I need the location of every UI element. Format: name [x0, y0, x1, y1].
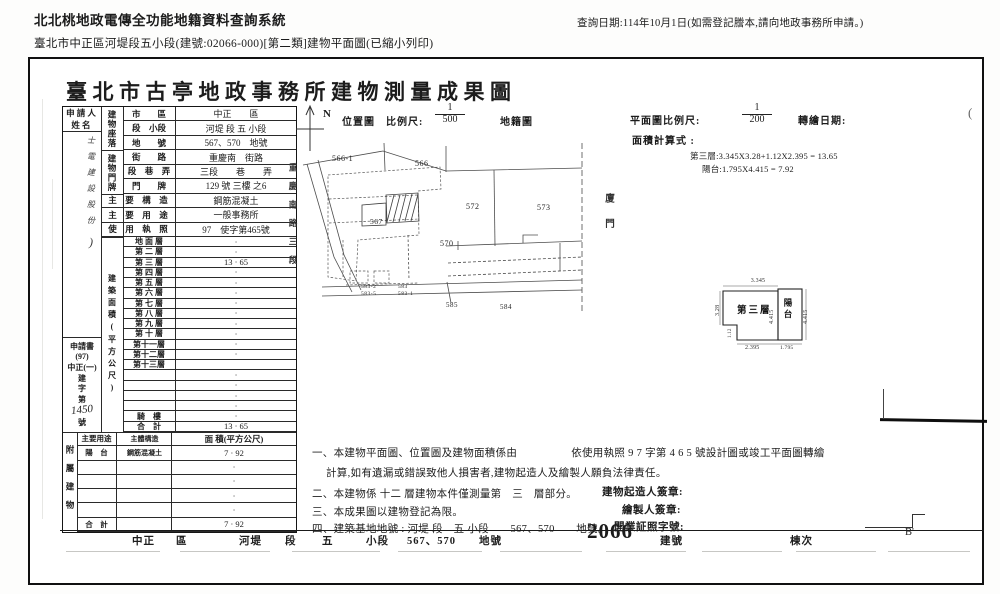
table-rule: [63, 131, 101, 132]
underline-mark: [292, 551, 380, 552]
scan-artifact-line: [865, 527, 912, 528]
handwritten-character: 股: [87, 199, 95, 210]
handwritten-mark: ): [89, 235, 94, 250]
attached-area: 7 · 92: [171, 518, 296, 531]
field-value: 567、570 地號: [175, 136, 296, 149]
field-label: 市 區: [123, 107, 175, 120]
attached-structure: [116, 461, 172, 474]
application-number-suffix: 號: [63, 417, 101, 428]
scan-artifact-mark: (: [968, 105, 972, 121]
bottom-strip-item: 河堤: [239, 533, 262, 548]
floor-label: 第十一層: [123, 340, 175, 349]
floor-row: 第 七 層·: [123, 299, 296, 309]
plan-scale-label: 平面圖比例尺:: [630, 112, 700, 127]
table-rule: [101, 237, 123, 238]
field-row: 門 牌129 號 三樓 之6: [123, 179, 296, 193]
parcel-number: 584: [500, 303, 512, 311]
attached-structure: [116, 489, 172, 502]
floor-row: 第 九 層·: [123, 319, 296, 329]
field-label: 使 用 執 照: [101, 223, 175, 236]
area-calc-label: 面積計算式 :: [632, 132, 695, 147]
attached-area: ·: [171, 475, 296, 488]
attached-use: 主要用途: [77, 432, 116, 445]
parcel-number: 585: [446, 301, 458, 309]
survey-sheet: 臺北市古亭地政事務所建物測量成果圖 申 請 人 姓 名 士電建設股份) 申請書(…: [28, 57, 984, 585]
floor-row: 第 五 層·: [123, 278, 296, 288]
field-value: 鋼筋混凝土: [175, 194, 296, 207]
cadastral-lines: [298, 143, 638, 319]
applicant-label: 申 請 人: [63, 107, 99, 119]
field-label: 地 號: [123, 136, 175, 149]
floor-row: 第 四 層·: [123, 268, 296, 278]
field-value: 中正 區: [175, 107, 296, 120]
scan-artifact-line: [912, 514, 913, 528]
attached-structure: [116, 475, 172, 488]
floor-label: 第 八 層: [123, 309, 175, 318]
parcel-number: 566-1: [332, 154, 353, 163]
application-stack-line: (97): [63, 352, 101, 361]
plan-scale: 1 200: [742, 103, 772, 125]
bottom-strip-item: 小段: [366, 533, 389, 548]
scan-artifact-line: [52, 179, 53, 269]
floor-plan-detail: 第三層 陽台 3.345 3.28 1.12 2.395 4.415 4.415…: [718, 283, 850, 361]
attached-row: ·: [77, 503, 296, 517]
floor-row: 合 計13 · 65: [123, 422, 296, 432]
location-map-scale: 1 500: [435, 103, 465, 125]
floor-area-value: ·: [175, 381, 296, 390]
scan-artifact-line: [42, 99, 43, 519]
scale-denominator: 500: [435, 114, 465, 125]
floor-row: 第十三層: [123, 360, 296, 370]
field-value: 河堤 段 五 小段: [175, 121, 296, 134]
dim-bottom: 2.395: [745, 345, 760, 351]
floor-label: 合 計: [123, 422, 175, 431]
dim-left: 3.28: [715, 305, 721, 316]
attached-area: ·: [171, 489, 296, 502]
floor-row: 第 六 層·: [123, 288, 296, 298]
floor-label: 地 面 層: [123, 237, 175, 246]
floor-area-value: ·: [175, 319, 296, 328]
floor-row: ·: [123, 391, 296, 401]
underline-mark: [702, 551, 782, 552]
area-calc-line: 陽台:1.795X4.415 = 7.92: [702, 163, 794, 175]
table-rule: [63, 337, 101, 338]
floor-area-value: ·: [175, 350, 296, 359]
field-label: 段 巷 弄: [123, 165, 175, 178]
scanned-document-page: 北北桃地政電傳全功能地籍資料查詢系統 查詢日期:114年10月1日(如需登記謄本…: [0, 0, 1000, 594]
floor-label: 第 十 層: [123, 329, 175, 338]
attached-group-label: 附屬建物: [63, 434, 77, 530]
attached-area: ·: [171, 461, 296, 474]
attached-use: 陽 台: [77, 446, 116, 459]
floor-row: ·: [123, 381, 296, 391]
building-number: 2066: [587, 519, 633, 544]
handwritten-character: 士: [87, 135, 95, 146]
floor-area-value: ·: [175, 309, 296, 318]
floor-area-value: ·: [175, 299, 296, 308]
parcel-number: 583-2: [361, 284, 376, 290]
application-stack-line: 字: [63, 383, 101, 394]
underline-mark: [500, 551, 582, 552]
field-value: 一般事務所: [175, 208, 296, 221]
floor-label: 第 九 層: [123, 319, 175, 328]
floor-area-value: [175, 360, 296, 369]
attached-structure: [116, 518, 172, 531]
underline-mark: [888, 551, 970, 552]
dim-top: 3.345: [740, 278, 776, 284]
floor-row: 地 面 層·: [123, 237, 296, 247]
field-value: 三段 巷 弄: [175, 165, 296, 178]
bottom-strip-item: 段: [285, 533, 297, 548]
system-title: 北北桃地政電傳全功能地籍資料查詢系統: [34, 9, 286, 29]
bottom-strip-item: 區: [176, 533, 188, 548]
field-value: 97 使字第465號: [175, 223, 296, 236]
floor-area-value: ·: [175, 411, 296, 420]
bottom-strip-item: 建號: [660, 533, 683, 548]
floor-area-value: ·: [175, 370, 296, 379]
applicant-label: 姓 名: [63, 119, 99, 131]
parcel-number: 583-1: [398, 291, 413, 297]
parcel-number: 583-5: [361, 291, 376, 297]
builder-signature-label: 建物起造人簽章:: [602, 484, 683, 499]
field-row: 市 區中正 區: [123, 107, 296, 121]
floor-row: ·: [123, 370, 296, 380]
address-group-label: 建物門牌: [102, 152, 122, 193]
underline-mark: [180, 551, 270, 552]
dim-balcony-right: 4.415: [803, 310, 809, 325]
street-label-right: 廈門: [601, 193, 615, 263]
floor-area-value: ·: [175, 268, 296, 277]
scan-artifact-line: [883, 389, 884, 419]
scale-denominator: 200: [742, 114, 772, 125]
application-stack-line: 建: [63, 373, 101, 384]
floor-label: 第 六 層: [123, 288, 175, 297]
floor-area-value: ·: [175, 329, 296, 338]
floor-row: 第 十 層·: [123, 329, 296, 339]
floor-area-value: ·: [175, 391, 296, 400]
document-subtitle: 臺北市中正區河堤段五小段(建號:02066-000)[第二類]建物平面圖(已縮小…: [34, 35, 433, 51]
dim-balcony-bottom: 1.795: [780, 345, 793, 351]
scale-numerator: 1: [448, 102, 453, 113]
field-value: 129 號 三樓 之6: [175, 179, 296, 192]
attached-use: 合 計: [77, 518, 116, 531]
building-data-table: 申 請 人 姓 名 士電建設股份) 申請書(97)中正(一)建字第1450號 建…: [62, 106, 297, 533]
floor-label: 騎 樓: [123, 411, 175, 420]
attached-use: [77, 475, 116, 488]
floor-label: 第十三層: [123, 360, 175, 369]
bottom-strip-item: 地號: [479, 533, 502, 548]
floor-label: 第 四 層: [123, 268, 175, 277]
location-group-label: 建物座落: [102, 108, 122, 149]
note-line-1b: 計算,如有遺漏或錯誤致他人損害者,建物起造人及繪製人願負法律責任。: [326, 465, 667, 480]
field-label: 主 要 構 造: [101, 194, 175, 207]
scan-artifact-line: [880, 418, 987, 422]
room-label: 第三層: [737, 302, 772, 316]
handwritten-character: 電: [87, 151, 95, 162]
floor-label: 第十二層: [123, 350, 175, 359]
floor-label: 第 七 層: [123, 299, 175, 308]
floor-row: 第 八 層·: [123, 309, 296, 319]
floor-label: 第 三 層: [123, 258, 175, 267]
floor-area-value: ·: [175, 247, 296, 256]
floor-label: [123, 381, 175, 390]
field-row: 段 巷 弄三段 巷 弄: [123, 165, 296, 179]
attached-use: [77, 489, 116, 502]
note-line-1: 一、本建物平面圖、位置圖及建物面積係由 依使用執照 9 7 字第 4 6 5 號…: [312, 445, 825, 460]
floor-area-value: ·: [175, 278, 296, 287]
scale-numerator: 1: [755, 102, 760, 113]
underline-mark: [606, 551, 686, 552]
handwritten-character: 建: [87, 167, 95, 178]
parcel-number: 573: [537, 203, 551, 212]
floor-row: 第十一層·: [123, 340, 296, 350]
floor-area-value: 13 · 65: [175, 422, 296, 431]
floor-label: [123, 401, 175, 410]
bottom-strip-item: 五: [322, 533, 334, 548]
note-line-2: 二、本建物係 十二 層建物本件僅測量第 三 層部分。: [312, 486, 577, 501]
field-row: 地 號567、570 地號: [123, 136, 296, 150]
attached-structure: 鋼筋混凝土: [116, 446, 172, 459]
floor-label: 第 二 層: [123, 247, 175, 256]
bottom-strip-item: 棟次: [790, 533, 813, 548]
attached-area: 7 · 92: [171, 446, 296, 459]
redraw-date-label: 轉繪日期:: [798, 112, 846, 127]
field-row: 段 小段河堤 段 五 小段: [123, 121, 296, 135]
table-rule: [101, 150, 123, 151]
note-line-3: 三、本成果圖以建物登記為限。: [312, 504, 463, 519]
street-label-left: 重慶南路三段: [287, 163, 299, 303]
floor-area-value: ·: [175, 288, 296, 297]
location-map-caption: 位置圖 比例尺:: [342, 113, 423, 128]
field-label: 主 要 用 途: [101, 208, 175, 221]
bottom-strip-item: 567、570: [407, 533, 456, 548]
area-calc-line: 第三層:3.345X3.28+1.12X2.395 = 13.65: [690, 150, 838, 162]
attached-structure: [116, 503, 172, 516]
balcony-label: 陽台: [782, 298, 794, 321]
application-stack-line: 中正(一): [63, 362, 101, 373]
attached-area: ·: [171, 503, 296, 516]
attached-use: [77, 503, 116, 516]
parcel-number: 570: [440, 239, 454, 248]
cadastre-map-caption: 地籍圖: [500, 113, 533, 128]
query-date: 查詢日期:114年10月1日(如需登記謄本,請向地政事務所申請。): [577, 15, 864, 30]
parcel-number: 572: [466, 202, 480, 211]
note-line-4: 四、建築基地地號 : 河堤 段 五 小段 567、570 地號。: [312, 521, 609, 536]
attached-row: ·: [77, 489, 296, 503]
field-row: 街 路重慶南 街路: [123, 150, 296, 164]
floor-area-group-label: 建築面積(平方公尺): [102, 239, 122, 430]
parcel-number: 583: [398, 284, 408, 290]
attached-header-row: 主要用途主體構造面 積(平方公尺): [77, 432, 296, 446]
floor-row: 騎 樓·: [123, 411, 296, 421]
bottom-strip-item: 中正: [132, 533, 155, 548]
field-value: 重慶南 街路: [175, 150, 296, 163]
bottom-separator-line: [60, 530, 984, 531]
floor-row: 第 三 層13 · 65: [123, 258, 296, 268]
underline-mark: [796, 551, 876, 552]
floor-row: ·: [123, 401, 296, 411]
attached-use: [77, 461, 116, 474]
field-label: 街 路: [123, 150, 175, 163]
dim-notch: 1.12: [728, 328, 733, 338]
attached-area: 面 積(平方公尺): [171, 432, 296, 445]
north-label: N: [323, 108, 332, 120]
dim-room-right: 4.415: [769, 310, 775, 325]
field-row: 主 要 構 造鋼筋混凝土: [101, 194, 296, 208]
field-label: 段 小段: [123, 121, 175, 134]
floor-row: 第十二層·: [123, 350, 296, 360]
attached-row: ·: [77, 461, 296, 475]
field-row: 使 用 執 照97 使字第465號: [101, 223, 296, 237]
floor-label: 第 五 層: [123, 278, 175, 287]
floor-area-value: ·: [175, 237, 296, 246]
attached-row: ·: [77, 475, 296, 489]
handwritten-character: 份: [87, 215, 95, 226]
field-row: 主 要 用 途一般事務所: [101, 208, 296, 222]
attached-structure: 主體構造: [116, 432, 172, 445]
floor-row: 第 二 層·: [123, 247, 296, 257]
underline-mark: [398, 551, 482, 552]
parcel-number: 567: [370, 217, 383, 226]
field-label: 門 牌: [123, 179, 175, 192]
floor-label: [123, 370, 175, 379]
application-stack-line: 申請書: [63, 341, 101, 352]
parcel-number: 566: [415, 159, 429, 168]
drafter-signature-label: 繪製人簽章:: [622, 502, 681, 517]
floor-area-value: ·: [175, 401, 296, 410]
handwritten-character: 設: [87, 183, 95, 194]
floor-label: [123, 391, 175, 400]
plate-mark: B': [905, 527, 914, 538]
underline-mark: [66, 551, 160, 552]
scan-artifact-line: [912, 514, 925, 515]
floor-area-value: ·: [175, 340, 296, 349]
location-map: 566-1566567570572573583-2583-5583583-158…: [298, 143, 638, 319]
attached-row: 陽 台鋼筋混凝土7 · 92: [77, 446, 296, 460]
floor-area-value: 13 · 65: [175, 258, 296, 267]
